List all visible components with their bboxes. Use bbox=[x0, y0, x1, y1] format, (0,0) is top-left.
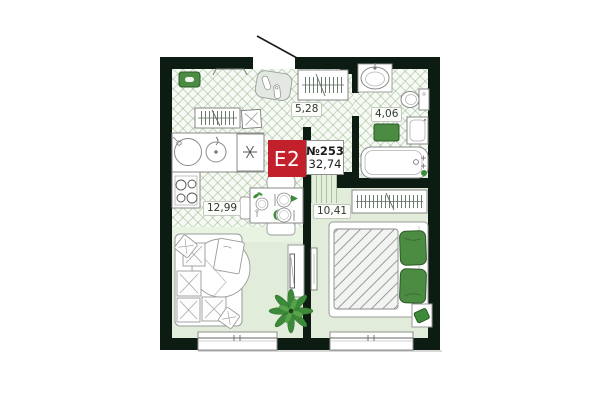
washing-machine-icon bbox=[407, 117, 428, 144]
hob-icon bbox=[237, 134, 264, 171]
tv-stand-bedroom-icon bbox=[311, 248, 317, 290]
corner-sofa-icon bbox=[174, 234, 250, 329]
bed-icon bbox=[329, 222, 428, 317]
blanket-icon bbox=[213, 238, 244, 274]
plant-icon bbox=[269, 289, 313, 333]
entrance-door-swing-icon bbox=[257, 36, 297, 58]
toilet-icon bbox=[401, 89, 429, 110]
shoe-bench-icon bbox=[254, 70, 293, 102]
unit-total-area: 32,74 bbox=[309, 158, 342, 171]
bedroom-wardrobe-icon bbox=[352, 190, 427, 213]
doormat-icon bbox=[179, 72, 200, 87]
furniture-layer bbox=[0, 0, 605, 403]
area-label-kitchen-living: 12,99 bbox=[203, 201, 241, 216]
area-label-bedroom: 10,41 bbox=[313, 204, 351, 219]
floor-plan[interactable]: 5,28 4,06 12,99 10,41 E2 №253 32,74 bbox=[0, 0, 605, 403]
stool-icon bbox=[241, 109, 261, 128]
bath-mat-icon bbox=[374, 124, 399, 141]
unit-info-badge: №253 32,74 bbox=[306, 140, 344, 175]
bathtub-icon bbox=[361, 147, 428, 178]
layout-type-badge: E2 bbox=[268, 140, 306, 177]
window-icon bbox=[330, 332, 413, 350]
bedside-table-icon bbox=[412, 304, 432, 327]
area-label-hallway: 5,28 bbox=[291, 102, 322, 117]
window-icon bbox=[198, 332, 277, 350]
stove-icon bbox=[172, 172, 200, 208]
hall-wardrobe-left-icon bbox=[195, 108, 240, 128]
area-label-bathroom: 4,06 bbox=[371, 107, 402, 122]
unit-badge[interactable]: E2 №253 32,74 bbox=[268, 140, 344, 177]
washbasin-icon bbox=[358, 63, 392, 92]
unit-number: №253 bbox=[306, 145, 344, 158]
hall-wardrobe-right-icon bbox=[298, 70, 348, 100]
coat-rail-icon bbox=[213, 69, 247, 75]
